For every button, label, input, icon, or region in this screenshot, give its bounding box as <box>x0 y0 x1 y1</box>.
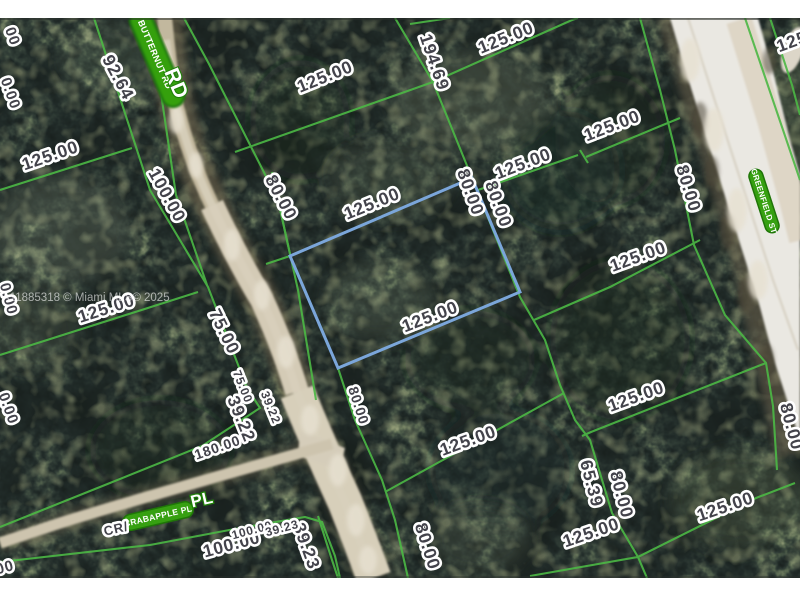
svg-text:A11885318 © Miami MLS© 2025: A11885318 © Miami MLS© 2025 <box>2 292 170 304</box>
